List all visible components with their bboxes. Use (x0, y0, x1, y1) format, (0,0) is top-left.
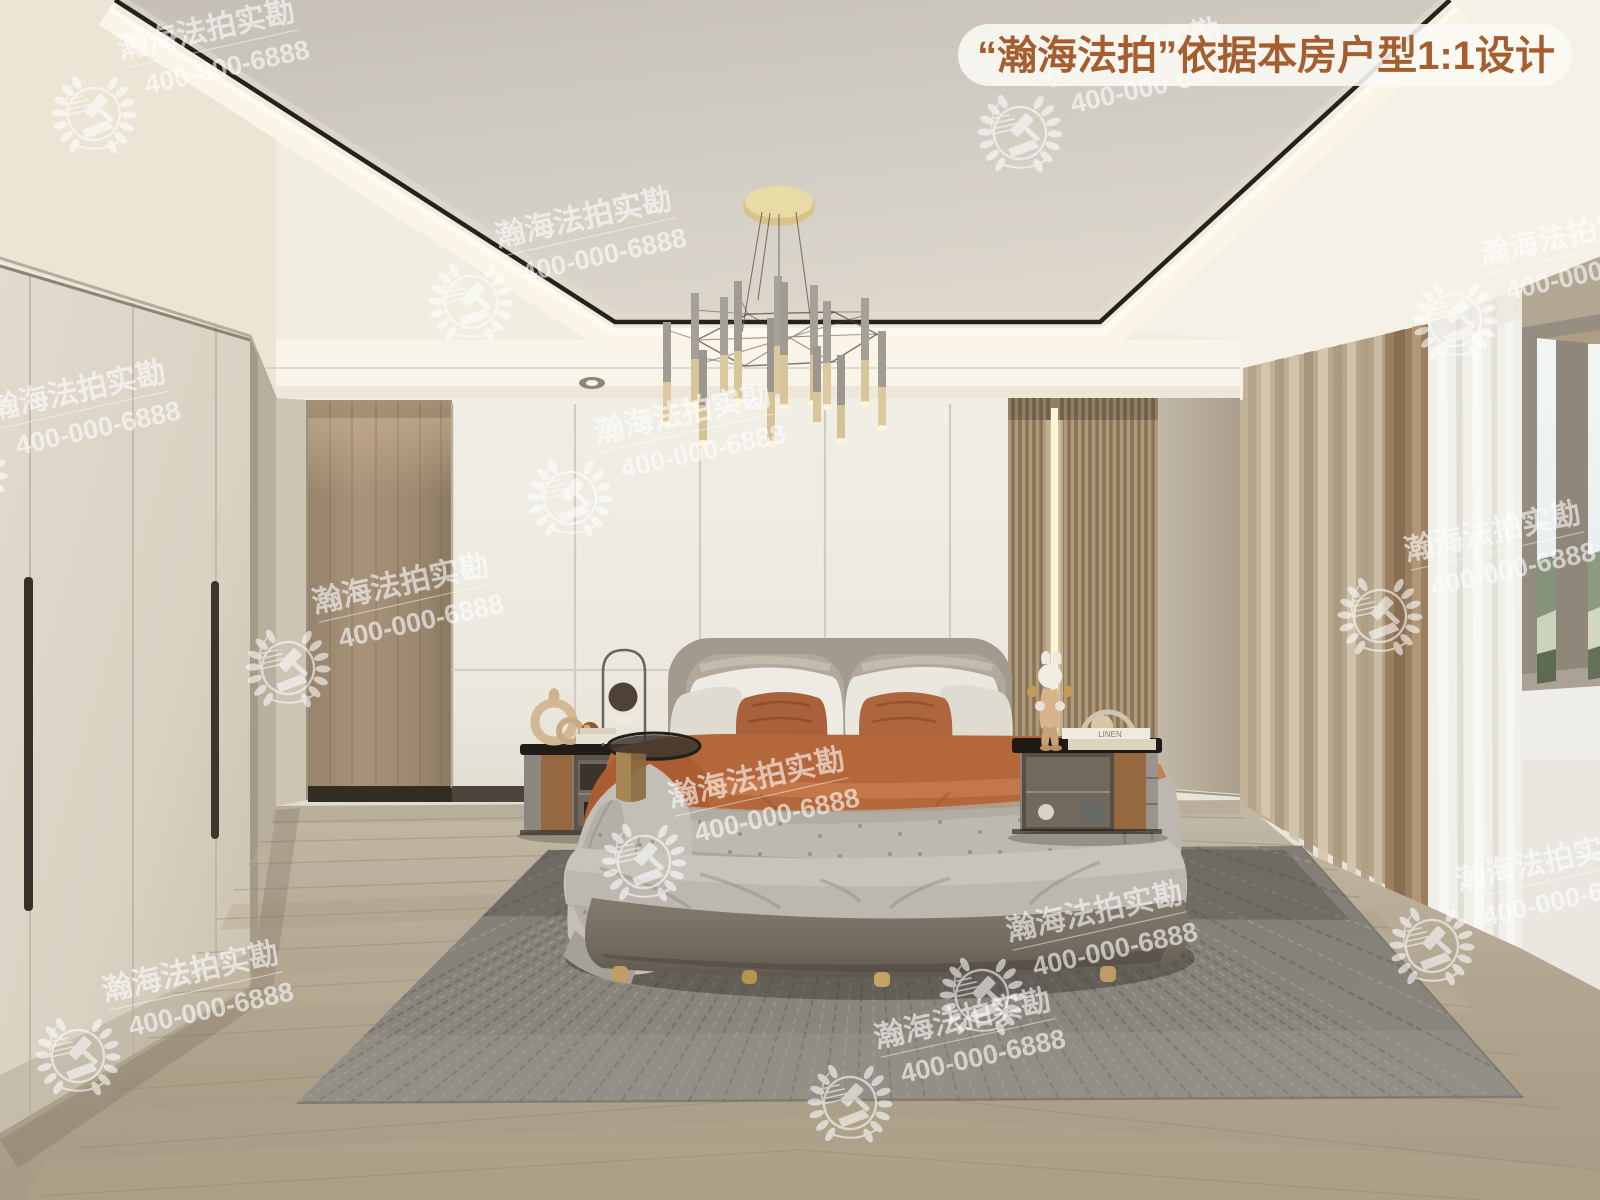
svg-text:“瀚海法拍”依据本房户型1:1设计: “瀚海法拍”依据本房户型1:1设计 (977, 34, 1555, 78)
svg-text:LINEN: LINEN (1098, 730, 1122, 739)
